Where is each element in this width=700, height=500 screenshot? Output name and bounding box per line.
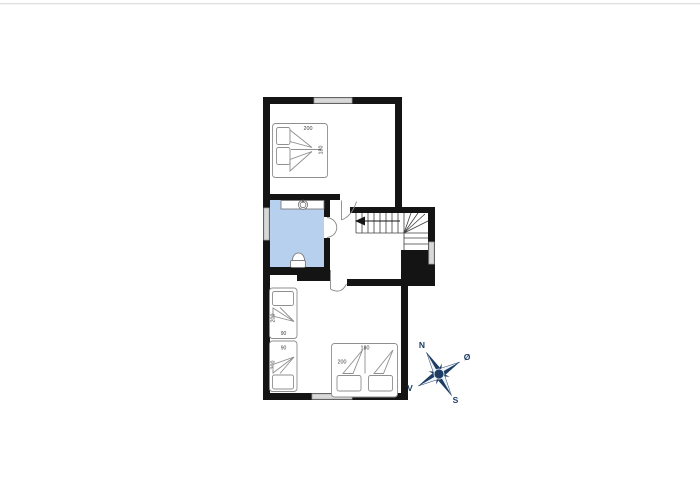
faucet-icon	[302, 200, 304, 202]
window-top	[314, 98, 352, 103]
bed-length-label: 200	[271, 314, 277, 323]
pillow	[369, 376, 393, 392]
chimney-block	[401, 250, 428, 279]
window-stairwell	[429, 242, 434, 264]
compass-label-east: Ø	[464, 352, 471, 362]
wall-right-lower	[401, 279, 408, 400]
wall-bathroom-top	[270, 194, 340, 200]
bed-double-bottom: 180 200	[332, 344, 398, 398]
toilet-tank-icon	[291, 261, 306, 268]
compass-label-south: S	[453, 395, 459, 405]
wall-stair-top	[350, 207, 435, 213]
bed-single-upper: 200 90	[270, 288, 298, 339]
compass-label-west: V	[407, 383, 413, 393]
compass-label-north: N	[419, 340, 425, 350]
wall-hall-divider	[347, 279, 401, 286]
wall-left	[263, 97, 270, 400]
bed-length-label: 200	[338, 360, 347, 366]
pillow	[277, 148, 291, 165]
floorplan-screenshot: 200 180 200 90 90 200 180 2	[0, 0, 700, 500]
wall-hall-block	[297, 267, 330, 281]
bed-width-label: 180	[361, 346, 370, 352]
pillow	[277, 128, 291, 145]
bed-width-label: 180	[319, 146, 325, 155]
bed-double-top: 200 180	[273, 124, 328, 178]
page-background	[0, 0, 700, 500]
compass-hub	[434, 369, 444, 379]
floor-plan-canvas: 200 180 200 90 90 200 180 2	[0, 0, 700, 500]
pillow	[273, 375, 294, 389]
bed-width-label: 90	[281, 346, 287, 352]
window-left	[264, 208, 269, 240]
wall-right-upper	[395, 97, 402, 213]
pillow	[273, 292, 294, 306]
bed-single-lower: 90 200	[270, 341, 298, 392]
bed-length-label: 200	[304, 126, 313, 132]
wall-bathroom-right-upper	[324, 200, 330, 217]
bed-width-label: 90	[281, 331, 287, 337]
top-hairline	[0, 3, 700, 4]
pillow	[337, 376, 361, 392]
